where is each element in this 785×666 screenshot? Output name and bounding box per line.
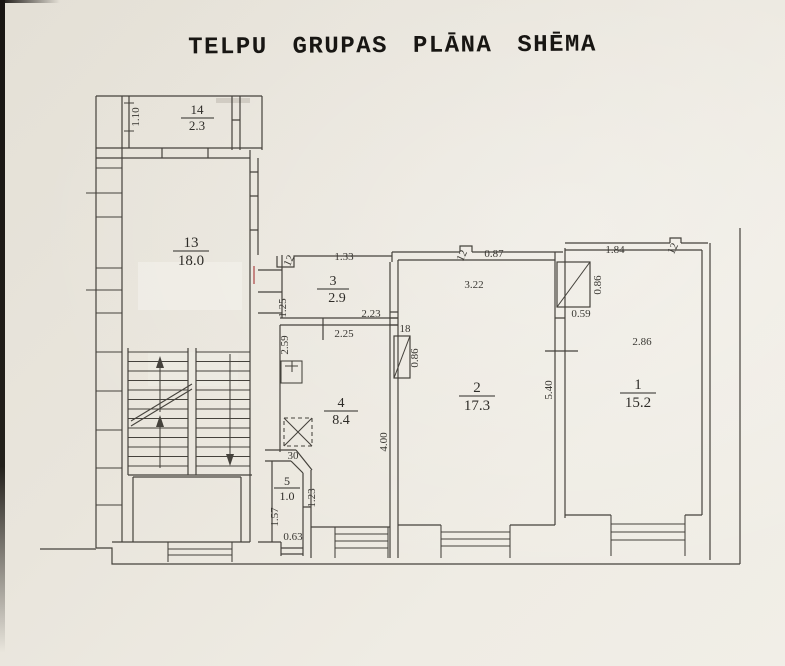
dim-0-86-a: 0.86 <box>409 348 421 368</box>
room-2-area: 17.3 <box>464 398 490 414</box>
vent-shaft-diagonal-2 <box>557 262 590 307</box>
room-label-5: 5 1.0 <box>274 474 300 503</box>
dim-1-33: 1.33 <box>334 251 354 263</box>
room-3-area: 2.9 <box>328 291 346 306</box>
room-label-3: 3 2.9 <box>317 274 349 306</box>
scanned-floor-plan-photo: TELPU GRUPAS PLĀNA SHĒMA <box>0 0 785 666</box>
room-2-number: 2 <box>473 380 481 396</box>
appliance-dashed-box <box>284 418 312 446</box>
room-4-area: 8.4 <box>332 413 350 428</box>
dim-1-57: 1.57 <box>269 507 281 527</box>
window-room2 <box>441 525 510 558</box>
dim-1-84: 1.84 <box>605 244 625 256</box>
room-13-number: 13 <box>184 235 199 251</box>
room-5-number: 5 <box>284 474 290 488</box>
room-label-1: 1 15.2 <box>620 377 656 411</box>
wall-lines-left-block <box>96 96 282 548</box>
dim-5-40: 5.40 <box>543 380 555 400</box>
dim-0-59: 0.59 <box>571 308 591 320</box>
dim-1-10: 1.10 <box>130 107 142 127</box>
bottom-windows <box>168 527 388 562</box>
dim-2-23: 2.23 <box>361 308 381 320</box>
window-room4 <box>335 527 388 558</box>
room-label-4: 4 8.4 <box>324 396 358 428</box>
room-label-14: 14 2.3 <box>181 102 214 133</box>
floor-plan-drawing: 14 2.3 13 18.0 3 2.9 4 8.4 5 <box>0 0 785 666</box>
room-label-13: 13 18.0 <box>173 235 209 269</box>
room-1-number: 1 <box>634 377 642 393</box>
dim-4-00: 4.00 <box>378 432 390 452</box>
room-3-number: 3 <box>330 274 337 289</box>
room-13-area: 18.0 <box>178 253 204 269</box>
correction-patch <box>138 262 242 310</box>
dim-0-87: 0.87 <box>484 248 504 260</box>
dim-3-22: 3.22 <box>464 279 483 291</box>
appliance-cross <box>284 418 312 446</box>
stair-arrowhead-down <box>226 454 234 466</box>
pencil-smudge <box>216 98 250 103</box>
vent-shaft-room2 <box>557 262 590 307</box>
dim-0-63: 0.63 <box>283 531 303 543</box>
sink-detail <box>285 361 298 372</box>
dim-wall-12-b: 12 <box>455 248 471 263</box>
dim-2-25: 2.25 <box>334 328 354 340</box>
walls-room2 <box>392 246 590 558</box>
stair-arrowhead-up-2 <box>156 415 164 427</box>
room-label-2: 2 17.3 <box>459 380 495 414</box>
dim-wall-18: 18 <box>400 323 412 335</box>
vent-shaft-diagonal <box>394 336 410 378</box>
dim-0-86-b: 0.86 <box>592 275 604 295</box>
stair-landing <box>133 477 241 542</box>
room-1-area: 15.2 <box>625 395 651 411</box>
vent-shaft-room4 <box>394 336 410 378</box>
window-stairwell <box>168 542 232 562</box>
room-labels: 14 2.3 13 18.0 3 2.9 4 8.4 5 <box>173 102 656 503</box>
room-14-number: 14 <box>191 102 205 117</box>
wall-tie-marks <box>86 103 134 505</box>
sink-fixture <box>281 361 302 383</box>
dim-2-86: 2.86 <box>632 336 652 348</box>
window-room1 <box>611 515 685 556</box>
dim-1-23: 1.23 <box>306 488 318 508</box>
wall-lines-room4-east <box>390 260 398 558</box>
room-14-area: 2.3 <box>189 118 205 133</box>
dim-2-59: 2.59 <box>279 335 291 355</box>
dim-1-25: 1.25 <box>277 298 289 318</box>
room-5-area: 1.0 <box>280 489 295 503</box>
room-4-number: 4 <box>338 396 345 411</box>
dim-wall-30: 30 <box>288 450 300 462</box>
